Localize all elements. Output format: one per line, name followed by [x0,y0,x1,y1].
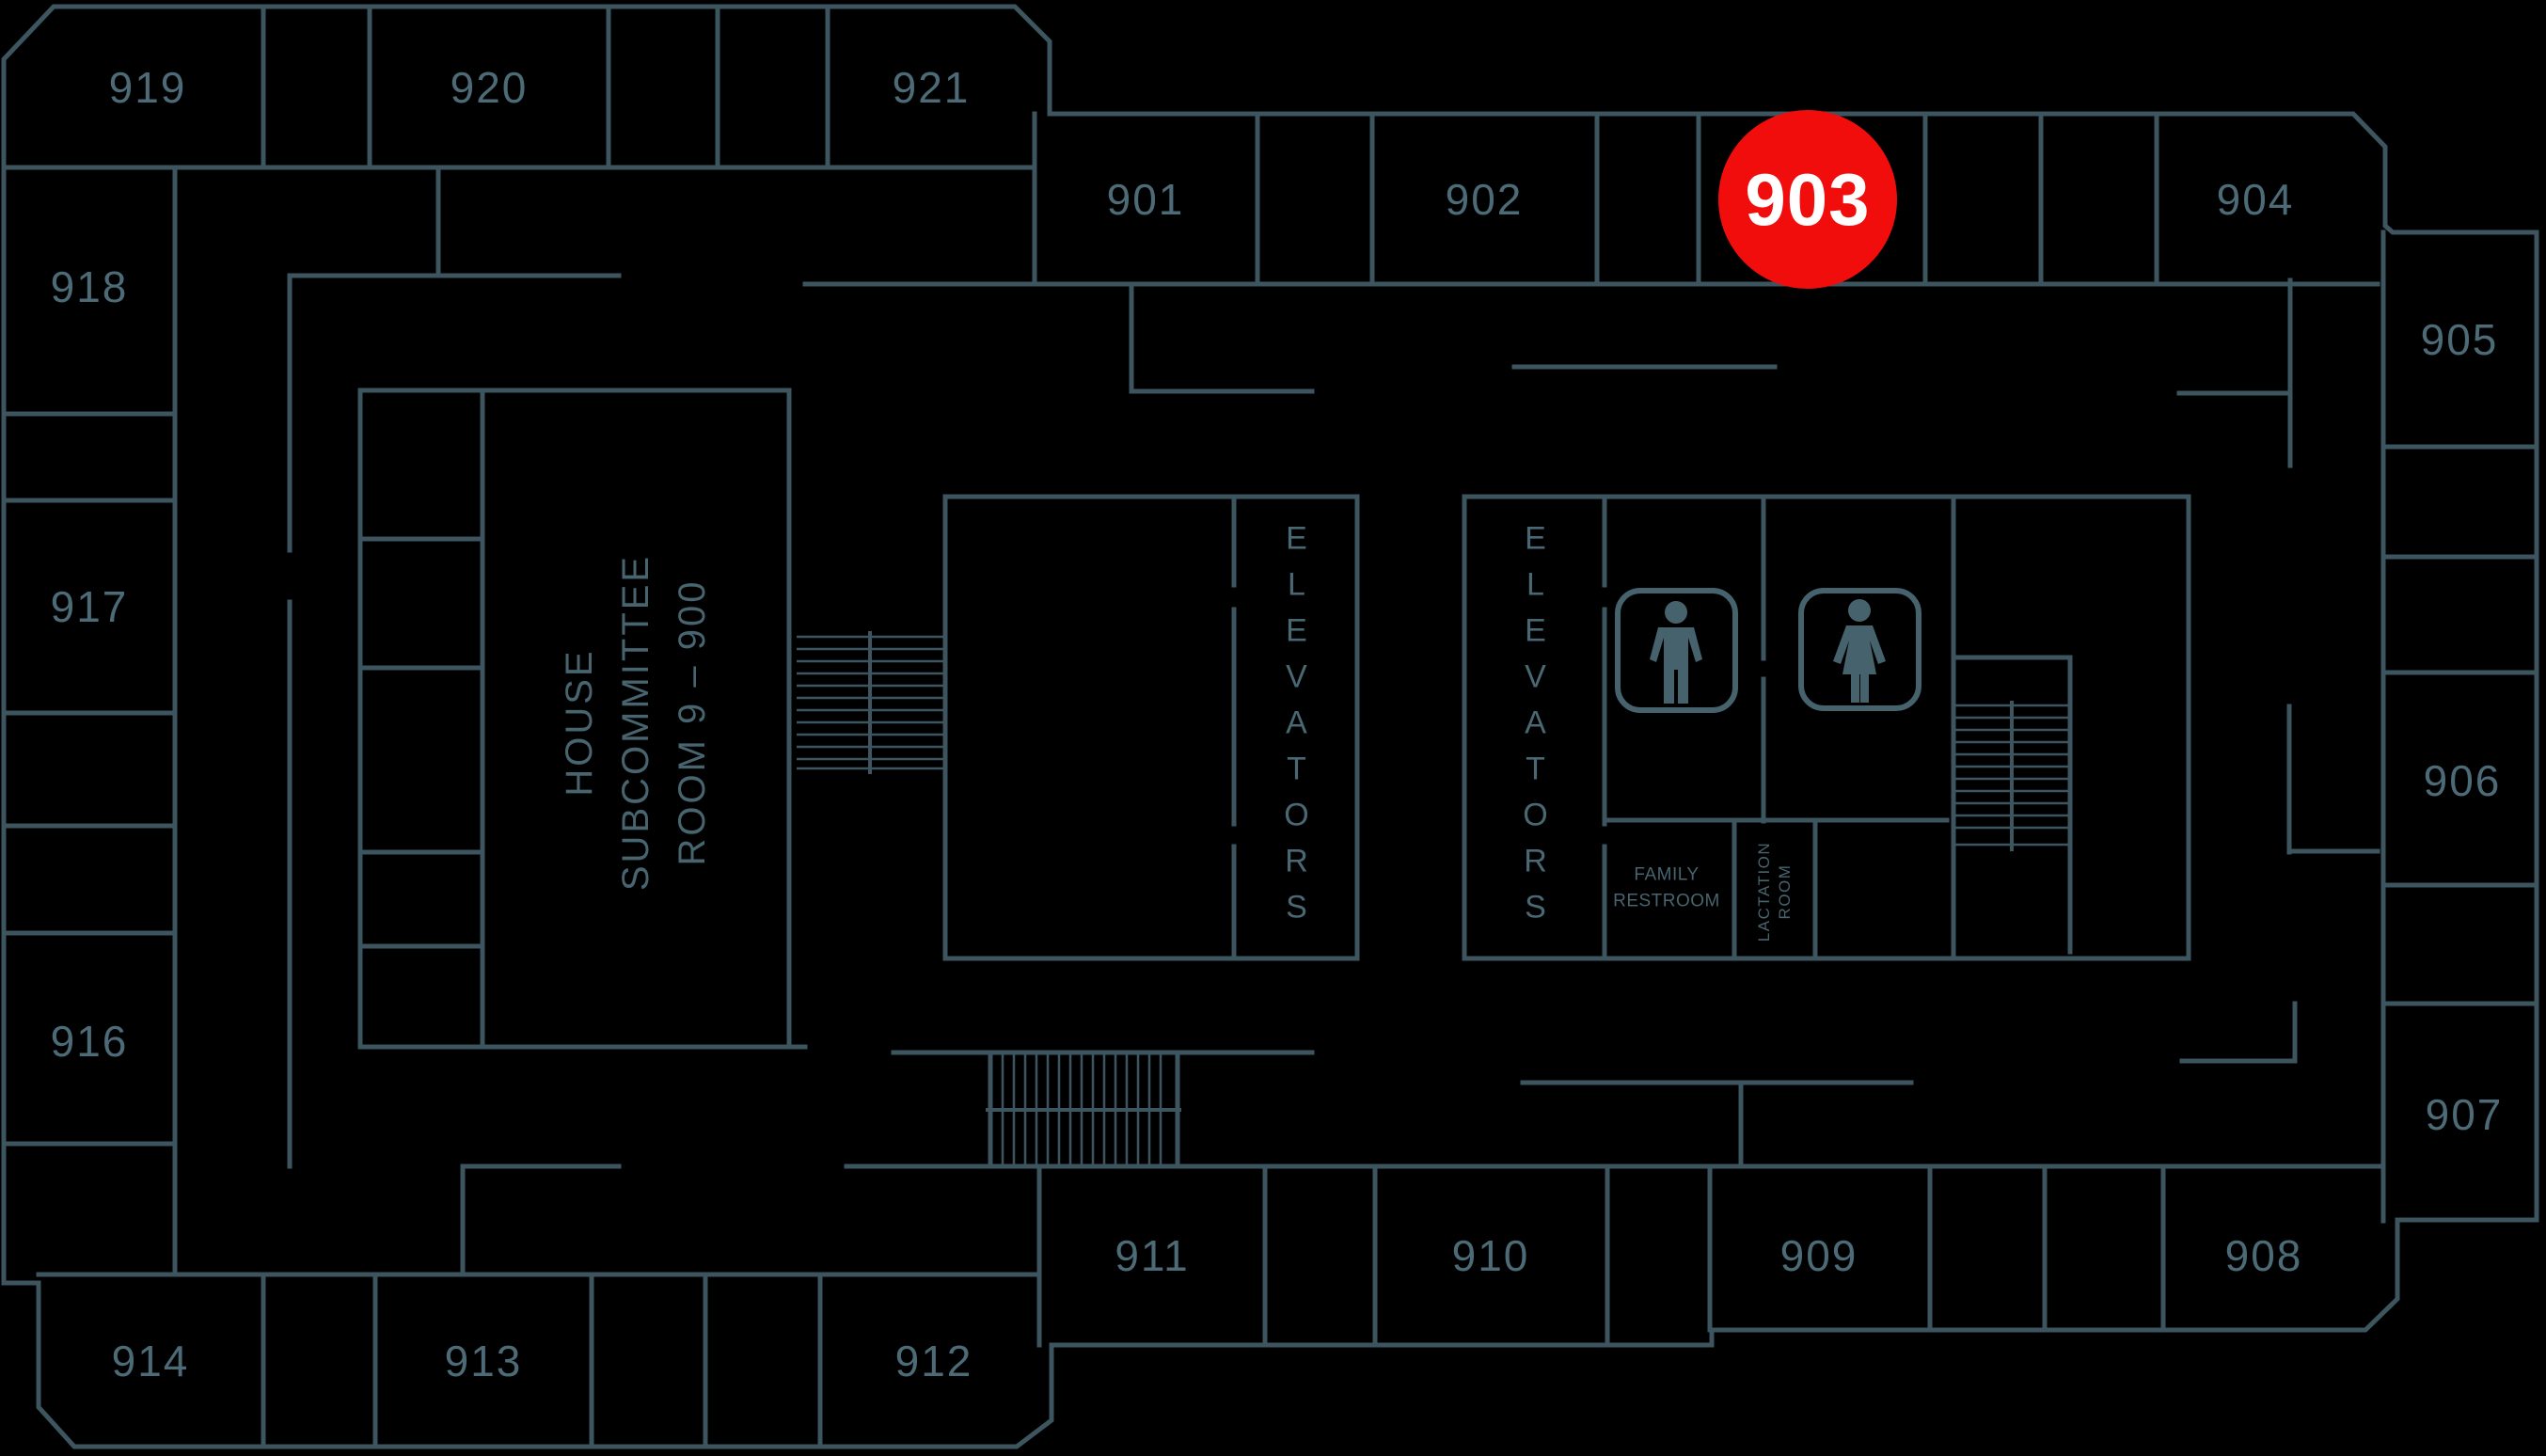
room-label-906: 906 [2424,755,2502,806]
room-label-907: 907 [2426,1089,2504,1140]
female-restroom-icon [1801,591,1919,708]
room-label-913: 913 [445,1336,523,1386]
floor-plan: 919 920 921 918 917 916 914 913 912 901 … [0,0,2546,1456]
room-label-920: 920 [451,62,529,113]
room-label-905: 905 [2421,314,2499,365]
room-label-901: 901 [1107,174,1185,225]
staircase-right-icon [1955,701,2068,851]
staircase-bottom-icon [986,1054,1181,1164]
lactation-room-label: LACTATION ROOM [1754,842,1795,942]
male-restroom-icon [1618,591,1735,710]
floor-plan-drawing [0,0,2546,1456]
room-label-921: 921 [893,62,971,113]
room-label-908: 908 [2225,1230,2303,1281]
room-label-912: 912 [895,1336,973,1386]
room-label-911: 911 [1115,1230,1189,1281]
elevators-right-label: ELEVATORS [1517,521,1554,936]
room-label-914: 914 [112,1336,190,1386]
room-label-916: 916 [51,1016,129,1067]
room-903-marker[interactable]: 903 [1718,110,1897,289]
room-label-917: 917 [51,581,129,632]
subcommittee-room-label: HOUSE SUBCOMMITTEE ROOM 9 – 900 [551,554,720,891]
room-label-910: 910 [1452,1230,1530,1281]
walls [4,7,2537,1447]
staircase-left-icon [797,631,943,774]
room-label-909: 909 [1780,1230,1858,1281]
room-label-902: 902 [1446,174,1524,225]
room-label-918: 918 [51,261,129,312]
family-restroom-label: FAMILY RESTROOM [1613,862,1720,913]
room-label-904: 904 [2217,174,2295,225]
elevators-left-label: ELEVATORS [1278,521,1315,936]
room-label-919: 919 [109,62,187,113]
